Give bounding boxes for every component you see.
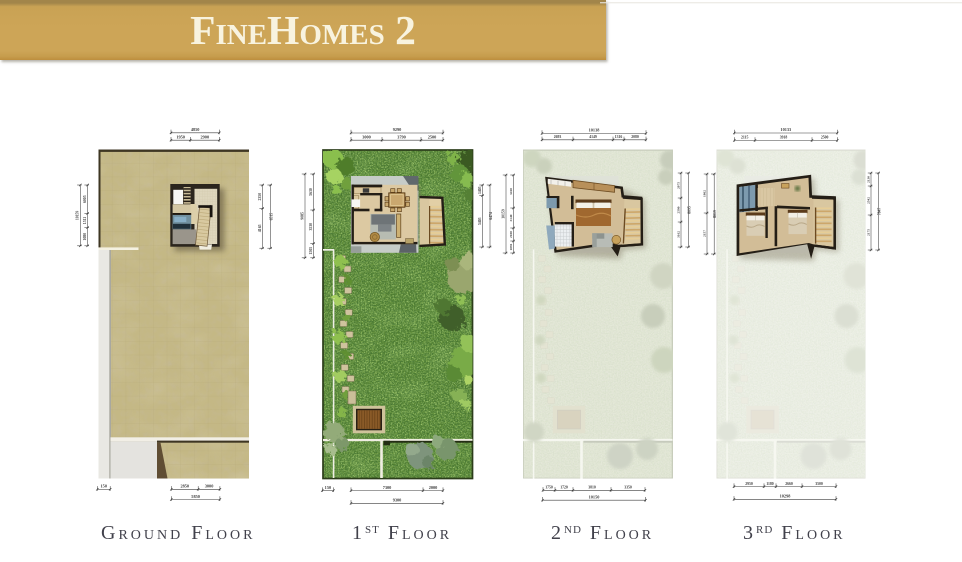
svg-text:2115: 2115 xyxy=(741,136,748,140)
svg-text:1750: 1750 xyxy=(545,486,553,490)
svg-text:2500: 2500 xyxy=(821,136,829,140)
svg-text:9300: 9300 xyxy=(393,498,402,503)
svg-text:9085: 9085 xyxy=(300,212,304,220)
svg-text:1862: 1862 xyxy=(702,190,706,197)
svg-text:2542: 2542 xyxy=(866,197,870,204)
svg-text:2950: 2950 xyxy=(745,482,753,486)
svg-text:2140: 2140 xyxy=(509,214,513,221)
svg-text:2850: 2850 xyxy=(180,484,189,489)
svg-text:1316: 1316 xyxy=(615,135,623,139)
svg-text:4165: 4165 xyxy=(258,224,262,232)
svg-text:6515: 6515 xyxy=(270,213,274,221)
svg-text:3810: 3810 xyxy=(588,486,596,490)
svg-text:5850: 5850 xyxy=(191,494,200,499)
svg-text:3918: 3918 xyxy=(780,136,788,140)
svg-text:10298: 10298 xyxy=(780,494,791,499)
svg-text:3000: 3000 xyxy=(205,484,214,489)
svg-text:2900: 2900 xyxy=(201,134,210,139)
svg-text:150: 150 xyxy=(101,484,107,489)
svg-text:6005: 6005 xyxy=(83,195,87,203)
svg-text:4149: 4149 xyxy=(589,135,597,139)
svg-text:1080: 1080 xyxy=(83,233,87,241)
svg-text:7847: 7847 xyxy=(877,208,881,216)
svg-text:2175: 2175 xyxy=(866,229,870,236)
svg-text:6474: 6474 xyxy=(489,212,493,220)
svg-text:2350: 2350 xyxy=(258,193,262,201)
svg-text:5630: 5630 xyxy=(309,188,313,196)
svg-text:1950: 1950 xyxy=(176,134,185,139)
svg-text:2100: 2100 xyxy=(509,231,513,238)
svg-text:10150: 10150 xyxy=(589,495,600,500)
svg-text:10159: 10159 xyxy=(76,211,80,221)
svg-text:2693: 2693 xyxy=(554,135,562,139)
svg-text:1720: 1720 xyxy=(560,486,568,490)
svg-text:8095: 8095 xyxy=(687,206,691,214)
svg-text:2660: 2660 xyxy=(785,482,793,486)
svg-text:3162: 3162 xyxy=(676,231,680,238)
svg-text:2500: 2500 xyxy=(428,134,437,139)
svg-text:3500: 3500 xyxy=(815,482,823,486)
svg-text:7300: 7300 xyxy=(383,485,392,490)
svg-text:2075: 2075 xyxy=(676,182,680,189)
svg-text:3350: 3350 xyxy=(624,486,632,490)
svg-text:4850: 4850 xyxy=(191,127,200,132)
svg-text:1180: 1180 xyxy=(766,482,773,486)
svg-text:2000: 2000 xyxy=(429,485,438,490)
svg-text:150: 150 xyxy=(325,485,331,490)
svg-text:9290: 9290 xyxy=(393,127,402,132)
svg-text:3410: 3410 xyxy=(509,188,513,195)
svg-text:3530: 3530 xyxy=(309,223,313,231)
svg-text:1891: 1891 xyxy=(509,243,513,250)
svg-text:2130: 2130 xyxy=(866,176,870,183)
svg-text:1505: 1505 xyxy=(309,247,313,255)
svg-text:10133: 10133 xyxy=(780,127,791,132)
svg-text:2080: 2080 xyxy=(631,135,639,139)
svg-text:3790: 3790 xyxy=(397,134,406,139)
svg-text:8019: 8019 xyxy=(713,210,717,218)
svg-text:2590: 2590 xyxy=(676,206,680,213)
svg-text:5405: 5405 xyxy=(478,217,482,225)
svg-text:1405: 1405 xyxy=(478,186,482,194)
svg-text:1511: 1511 xyxy=(83,217,87,224)
svg-text:3000: 3000 xyxy=(362,134,371,139)
svg-text:10138: 10138 xyxy=(589,128,600,133)
svg-text:10159: 10159 xyxy=(501,209,505,219)
svg-text:2157: 2157 xyxy=(702,230,706,237)
